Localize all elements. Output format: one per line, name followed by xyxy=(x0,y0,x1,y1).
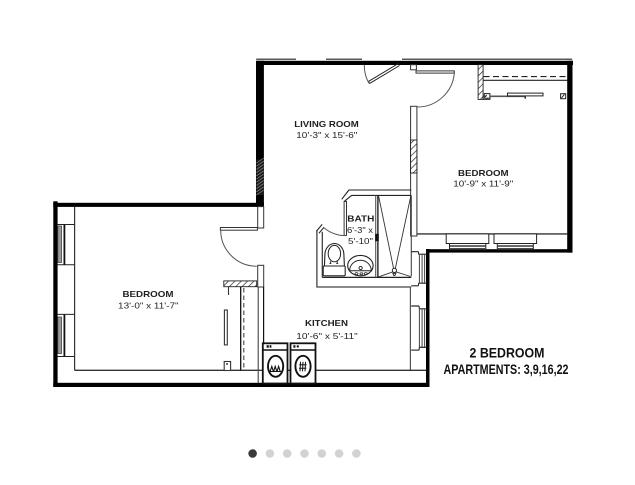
svg-text:10'-9" x 11'-9": 10'-9" x 11'-9" xyxy=(453,179,513,189)
svg-text:KITCHEN: KITCHEN xyxy=(305,318,348,328)
svg-text:13'-0" x 11'-7": 13'-0" x 11'-7" xyxy=(118,300,179,310)
svg-text:APARTMENTS: 3,9,16,22: APARTMENTS: 3,9,16,22 xyxy=(444,362,569,377)
svg-text:BEDROOM: BEDROOM xyxy=(123,289,174,299)
svg-text:10'-3" x 15'-6": 10'-3" x 15'-6" xyxy=(296,130,357,140)
svg-text:BEDROOM: BEDROOM xyxy=(458,168,509,178)
svg-text:BATH: BATH xyxy=(347,213,374,223)
svg-text:10'-6" x 5'-11": 10'-6" x 5'-11" xyxy=(296,331,358,341)
svg-text:2 BEDROOM: 2 BEDROOM xyxy=(470,346,545,361)
svg-text:6'-3" x: 6'-3" x xyxy=(347,225,374,235)
svg-text:LIVING ROOM: LIVING ROOM xyxy=(294,119,359,129)
svg-text:5'-10": 5'-10" xyxy=(348,236,373,246)
